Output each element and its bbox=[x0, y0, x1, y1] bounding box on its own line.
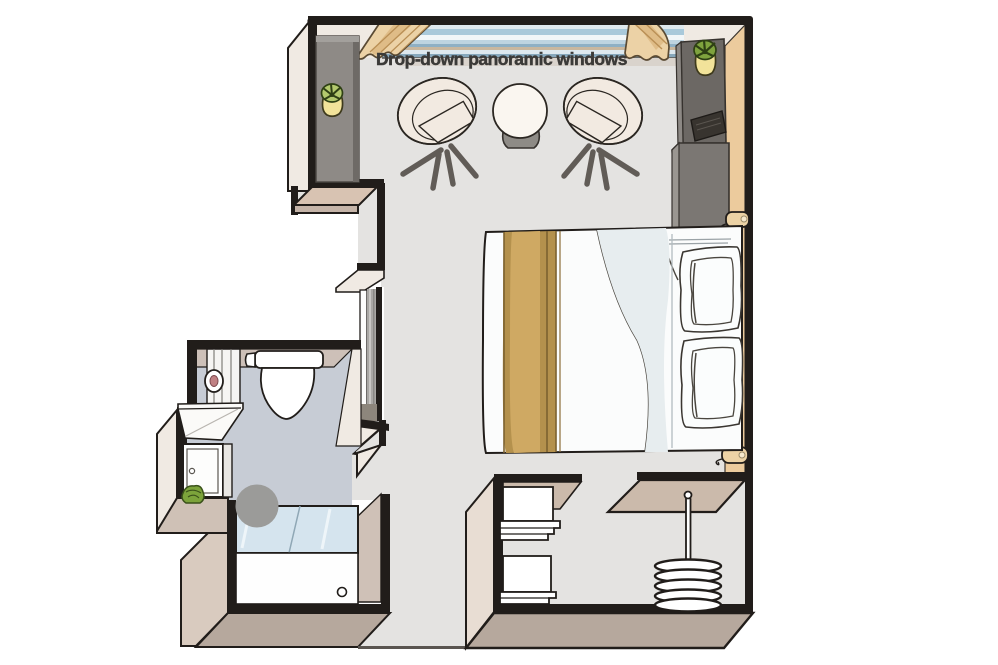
svg-text:Drop-down panoramic windows: Drop-down panoramic windows bbox=[376, 49, 628, 69]
